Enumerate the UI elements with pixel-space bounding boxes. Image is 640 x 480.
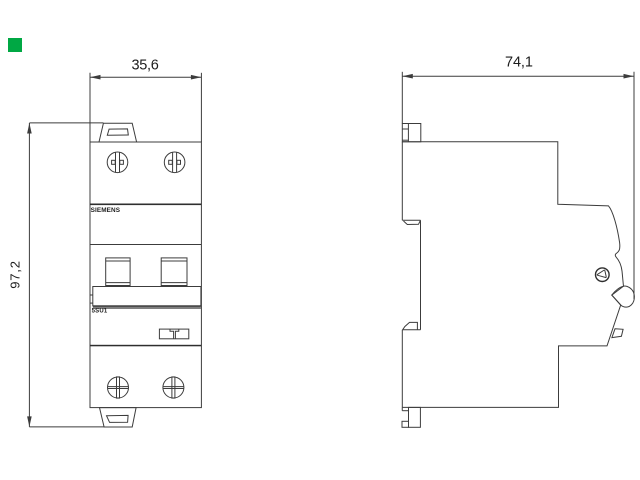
svg-text:35,6: 35,6	[131, 57, 158, 73]
svg-text:97,2: 97,2	[8, 260, 23, 289]
svg-text:5SU1: 5SU1	[92, 308, 108, 314]
svg-text:SIEMENS: SIEMENS	[91, 207, 121, 214]
svg-text:74,1: 74,1	[505, 55, 533, 71]
